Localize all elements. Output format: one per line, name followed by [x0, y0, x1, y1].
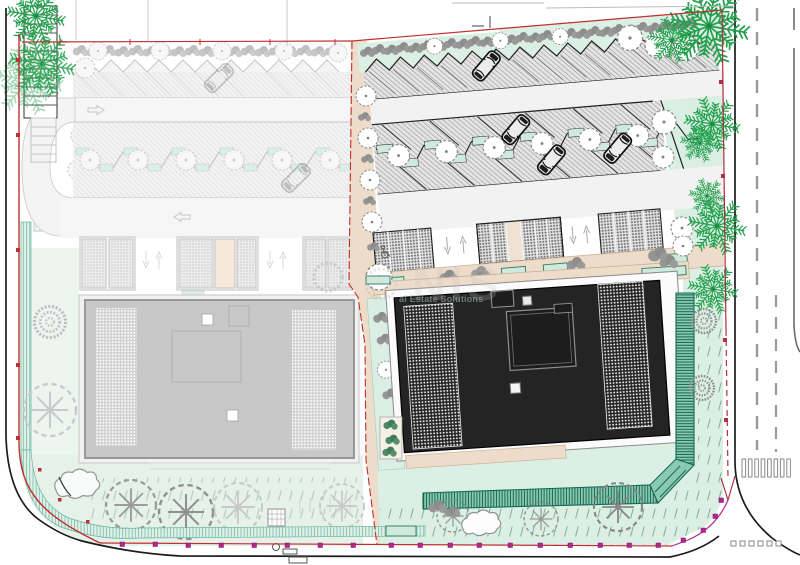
svg-text:al Estate Solutions: al Estate Solutions — [399, 294, 483, 304]
